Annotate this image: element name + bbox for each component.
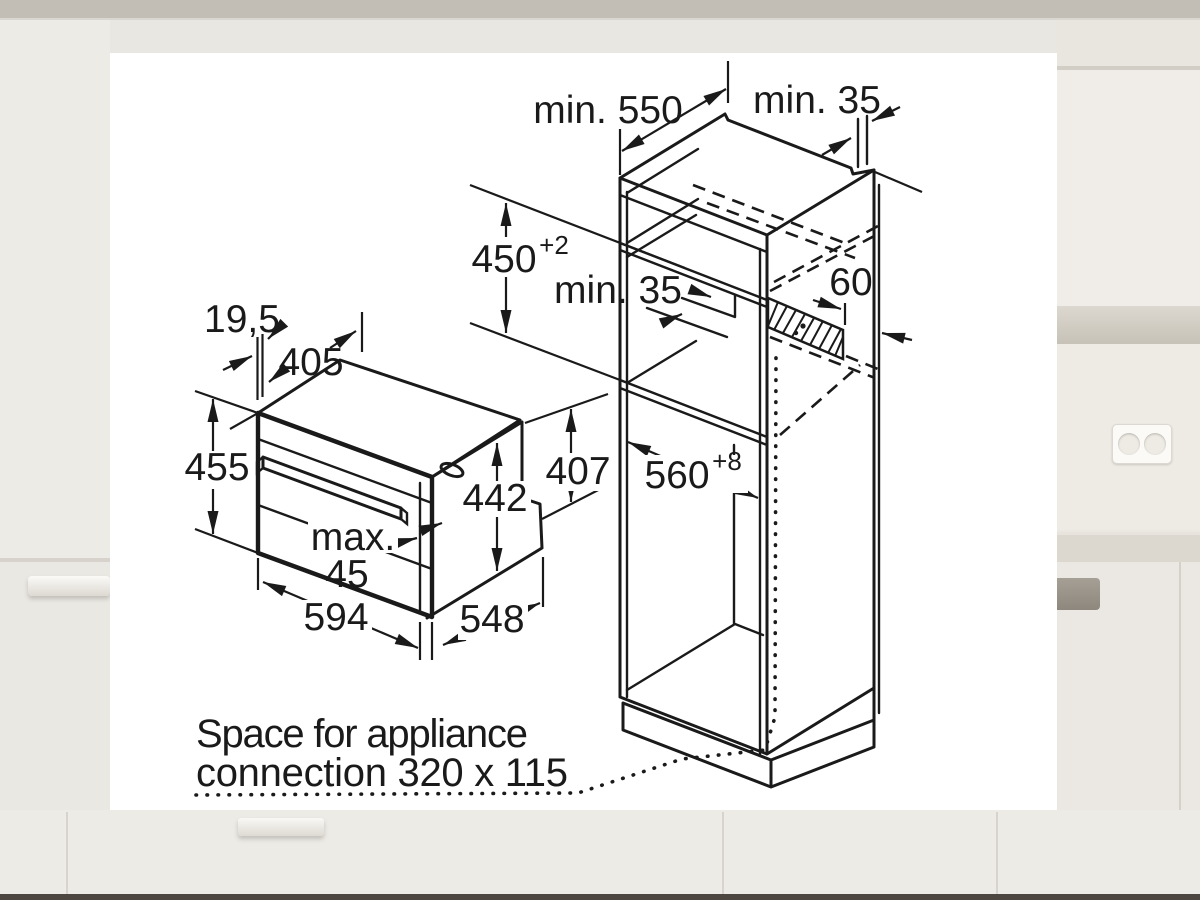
wall-edge-extension <box>875 172 922 192</box>
kitchen-bottom-cabinets <box>0 810 1200 900</box>
dim-front-height: 442 <box>459 443 531 571</box>
front-height-label: 442 <box>462 477 527 520</box>
connection-note: Space for appliance connection 320 x 115 <box>196 712 568 795</box>
kitchen-right-countertop <box>1056 532 1200 565</box>
depth-label: 548 <box>459 598 524 641</box>
dim-wall-gap-top: min. 35 <box>753 79 900 155</box>
total-height-label: 455 <box>184 446 249 489</box>
kitchen-bottom-seam <box>722 812 724 894</box>
dim-niche-width: 560 +8 <box>628 442 758 498</box>
kitchen-right-handle <box>1056 578 1100 610</box>
dim-depth: 548 <box>443 557 543 645</box>
wall-strip-lines <box>858 116 867 167</box>
kitchen-left-cabinet <box>0 20 110 560</box>
kitchen-right-seam <box>1179 562 1181 810</box>
dim-inset-depth: 19,5 <box>204 298 282 400</box>
kitchen-left-seam <box>0 558 110 562</box>
width-label: 594 <box>303 596 368 639</box>
connection-note-line1: Space for appliance <box>196 712 528 756</box>
niche-height-tolerance: +2 <box>539 230 569 260</box>
side-vent-opening <box>439 461 464 480</box>
dim-top-depth: 405 <box>269 312 362 384</box>
kitchen-right-upper-cabinet <box>1056 20 1200 70</box>
power-outlet <box>1112 424 1172 464</box>
kitchen-right-wall <box>1056 70 1200 306</box>
kitchen-left-cabinet-handle <box>28 576 110 596</box>
cabinet-depth-label: min. 550 <box>533 89 683 132</box>
door-max-label-2: 45 <box>325 553 368 596</box>
connection-note-line2: connection 320 x 115 <box>196 751 568 795</box>
inset-depth-label: 19,5 <box>204 298 280 341</box>
installation-diagram-panel: min. 550 min. 35 450 +2 min. 35 60 560 +… <box>110 53 1057 810</box>
top-depth-label: 405 <box>278 341 343 384</box>
dim-total-height: 455 <box>182 391 258 553</box>
niche-width-label: 560 <box>644 454 709 497</box>
vent-width-label: 60 <box>829 261 872 304</box>
dim-door-max: max. 45 <box>308 516 442 596</box>
rear-height-label: 407 <box>545 450 610 493</box>
niche-height-label: 450 <box>471 238 536 281</box>
kitchen-bottom-seam <box>66 812 68 894</box>
dim-rear-height: 407 <box>525 394 617 519</box>
socket-icon <box>1118 433 1140 455</box>
wall-gap-label: min. 35 <box>753 79 881 122</box>
dim-cabinet-depth: min. 550 <box>533 61 728 175</box>
socket-icon <box>1144 433 1166 455</box>
niche-width-tolerance: +8 <box>712 446 742 476</box>
kitchen-soffit <box>0 0 1200 20</box>
kitchen-bottom-seam <box>996 812 998 894</box>
shelf-gap-label: min. 35 <box>554 269 682 312</box>
kitchen-bottom-handle <box>238 818 324 836</box>
installation-diagram: min. 550 min. 35 450 +2 min. 35 60 560 +… <box>110 53 1057 810</box>
kitchen-right-shelf <box>1056 306 1200 344</box>
kitchen-left-lower-cabinet <box>0 562 110 810</box>
kitchen-plinth <box>0 894 1200 900</box>
